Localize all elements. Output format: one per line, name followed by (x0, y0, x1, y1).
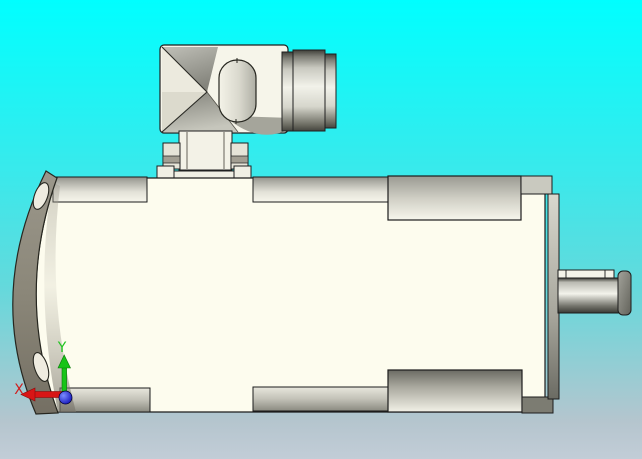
connector-oval-boss (219, 60, 256, 122)
motor-rib-bottom-mid (253, 387, 388, 411)
motor-corner-top-right (521, 176, 552, 194)
output-shaft (558, 270, 631, 315)
motor-rib-bottom-right (388, 370, 522, 412)
cad-scene: X Y (0, 0, 642, 459)
connector-plug-barrel (282, 50, 336, 131)
motor-rib-top-right (388, 176, 521, 220)
shaft-end-face (618, 271, 631, 315)
motor-rib-top-left (53, 177, 147, 202)
x-axis-label: X (14, 382, 24, 398)
motor-end-cap (548, 194, 559, 399)
y-axis-label: Y (57, 340, 67, 356)
z-axis-origin-dot (59, 391, 72, 404)
motor-rib-top-mid (253, 177, 388, 202)
shaft-body (558, 278, 620, 313)
motor (13, 171, 631, 414)
cad-viewport[interactable]: X Y (0, 0, 642, 459)
